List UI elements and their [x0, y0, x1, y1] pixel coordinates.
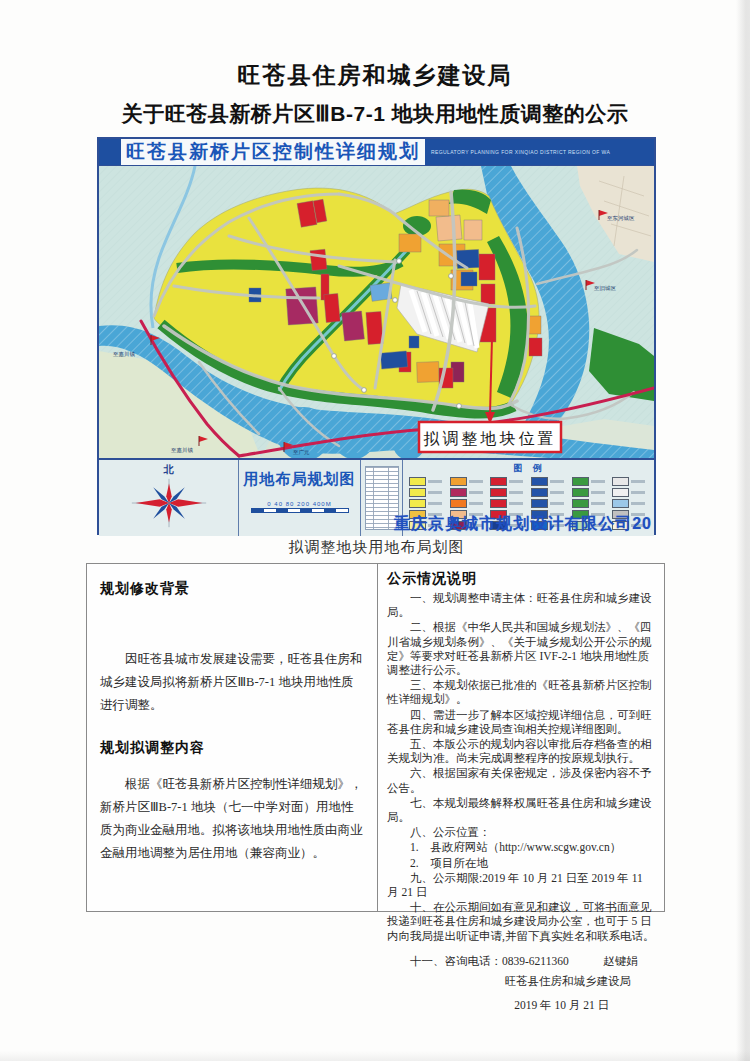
legend-item — [531, 499, 569, 508]
legend-swatch — [572, 488, 589, 497]
planning-map: 至东河城区 至旧城区 至嘉川镇 至嘉川镇 至广元 拟调整地块位置 — [99, 166, 654, 458]
legend-item — [450, 477, 488, 486]
section-heading-adjustment: 规划拟调整内容 — [100, 739, 364, 757]
signature-date: 2019 年 10 月 21 日 — [387, 998, 655, 1013]
notice-item-3: 三、本规划依据已批准的《旺苍县新桥片区控制性详细规划》。 — [387, 678, 655, 706]
north-label: 北 — [164, 463, 174, 477]
legend-swatch — [409, 477, 426, 486]
legend-item — [612, 477, 650, 486]
callout-label: 拟调整地块位置 — [424, 430, 557, 447]
legend-label-placeholder — [631, 480, 645, 483]
map-caption: 拟调整地块用地布局划图 — [97, 538, 656, 557]
marker-label-5: 至广元 — [293, 449, 310, 455]
map-header-subtitle-en: REGULATORY PLANNING FOR XINQIAO DISTRICT… — [425, 139, 654, 165]
notice-item-5: 五、本版公示的规划内容以审批后存档备查的相关规划为准。尚未完成调整程序的按原规划… — [387, 737, 655, 765]
legend-label-placeholder — [550, 502, 564, 505]
notice-item-9: 九、公示期限:2019 年 10 月 21 日至 2019 年 11 月 21 … — [387, 871, 655, 899]
marker-label-3: 至嘉川镇 — [113, 351, 136, 358]
adjustment-paragraph: 根据《旺苍县新桥片区控制性详细规划》，新桥片区ⅢB-7-1 地块（七一中学对面）… — [100, 773, 364, 865]
legend-swatch — [531, 499, 548, 508]
notice-item-8-sub1: 1. 县政府网站（http://www.scgw.gov.cn） — [387, 840, 655, 854]
legend-label-placeholder — [509, 502, 523, 505]
legend-item — [572, 488, 610, 497]
legend-item — [490, 488, 528, 497]
plan-title: 用地布局规划图 — [239, 470, 360, 489]
map-footer: 北 用地布局规划图 — [99, 458, 654, 536]
legend-label-placeholder — [591, 491, 605, 494]
legend-item — [409, 488, 447, 497]
legend-label-placeholder — [509, 480, 523, 483]
legend-label-placeholder — [550, 491, 564, 494]
section-heading-background: 规划修改背景 — [100, 580, 364, 598]
legend-item — [409, 477, 447, 486]
legend-label-placeholder — [428, 502, 442, 505]
legend-label-placeholder — [591, 502, 605, 505]
legend-item — [612, 499, 650, 508]
scan-edge-bottom — [0, 1051, 750, 1061]
legend-label-placeholder — [550, 480, 564, 483]
legend-label-placeholder — [469, 491, 483, 494]
compass-rose-icon — [127, 477, 211, 529]
right-column: 公示情况说明 一、规划调整申请主体：旺苍县住房和城乡建设局。 二、根据《中华人民… — [378, 564, 664, 911]
notice-item-1: 一、规划调整申请主体：旺苍县住房和城乡建设局。 — [387, 591, 655, 619]
legend-item — [490, 477, 528, 486]
legend-title: 图 例 — [409, 462, 650, 475]
section-heading-notice: 公示情况说明 — [387, 570, 655, 588]
notice-item-11: 十一、咨询电话：0839-6211360 赵键娟 — [387, 954, 655, 968]
legend-label-placeholder — [591, 480, 605, 483]
notice-item-8-sub2: 2. 项目所在地 — [387, 856, 655, 870]
legend-label-placeholder — [428, 480, 442, 483]
signature: 旺苍县住房和城乡建设局 — [387, 974, 655, 989]
notice-item-2: 二、根据《中华人民共和国城乡规划法》、《四川省城乡规划条例》、《关于城乡规划公开… — [387, 620, 655, 677]
marker-label-2: 至旧城区 — [594, 285, 617, 291]
legend-item — [490, 499, 528, 508]
legend-label-placeholder — [509, 491, 523, 494]
legend-swatch — [531, 488, 548, 497]
legend-swatch — [572, 477, 589, 486]
page-title-line1: 旺苍县住房和城乡建设局 — [60, 60, 690, 91]
notice-item-8: 八、公示位置： — [387, 825, 655, 839]
legend-swatch — [490, 488, 507, 497]
legend-swatch — [450, 499, 467, 508]
planning-map-figure: 旺苍县新桥片区控制性详细规划 REGULATORY PLANNING FOR X… — [97, 137, 656, 535]
company-name: 重庆京奥城市规划设计有限公司20 — [394, 514, 652, 535]
info-panel: 规划修改背景 因旺苍县城市发展建设需要，旺苍县住房和城乡建设局拟将新桥片区ⅢB-… — [86, 563, 665, 912]
scale-text: 0 40 80 200 400M — [239, 501, 360, 507]
notice-item-10: 十、在公示期间如有意见和建议，可将书面意见投递到旺苍县住房和城乡建设局办公室，也… — [387, 900, 655, 943]
legend-swatch — [450, 488, 467, 497]
legend-swatch — [409, 499, 426, 508]
legend-item — [450, 488, 488, 497]
scan-edge-right — [736, 0, 750, 1061]
scale-bar: 0 40 80 200 400M — [239, 501, 360, 513]
legend-item — [572, 477, 610, 486]
legend-label-placeholder — [469, 502, 483, 505]
map-header-title: 旺苍县新桥片区控制性详细规划 — [121, 139, 425, 165]
page-title-line2: 关于旺苍县新桥片区ⅢB-7-1 地块用地性质调整的公示 — [60, 100, 690, 128]
marker-label-1: 至东河城区 — [607, 215, 635, 222]
map-canvas: 至东河城区 至旧城区 至嘉川镇 至嘉川镇 至广元 拟调整地块位置 — [99, 166, 654, 458]
legend-swatch — [612, 477, 629, 486]
legend-item — [450, 499, 488, 508]
legend-label-placeholder — [428, 491, 442, 494]
legend-item — [531, 477, 569, 486]
page-title-block: 旺苍县住房和城乡建设局 关于旺苍县新桥片区ⅢB-7-1 地块用地性质调整的公示 — [60, 60, 690, 128]
marker-label-4: 至嘉川镇 — [171, 447, 194, 454]
notice-item-4: 四、需进一步了解本区域控规详细信息，可到旺苍县住房和城乡建设局查询相关控规详细图… — [387, 708, 655, 736]
plan-title-panel: 用地布局规划图 0 40 80 200 400M — [239, 460, 361, 536]
legend-label-placeholder — [631, 502, 645, 505]
map-header-square — [99, 139, 121, 165]
left-column: 规划修改背景 因旺苍县城市发展建设需要，旺苍县住房和城乡建设局拟将新桥片区ⅢB-… — [87, 564, 378, 911]
compass-panel: 北 — [99, 460, 239, 536]
legend-swatch — [612, 488, 629, 497]
legend-label-placeholder — [469, 480, 483, 483]
legend-swatch — [612, 499, 629, 508]
legend-swatch — [572, 499, 589, 508]
legend-swatch — [531, 477, 548, 486]
legend-label-placeholder — [631, 491, 645, 494]
legend-swatch — [450, 477, 467, 486]
legend-swatch — [490, 477, 507, 486]
legend-swatch — [409, 488, 426, 497]
map-header: 旺苍县新桥片区控制性详细规划 REGULATORY PLANNING FOR X… — [99, 139, 654, 166]
notice-item-6: 六、根据国家有关保密规定，涉及保密内容不予公告。 — [387, 766, 655, 794]
legend-swatch — [490, 499, 507, 508]
legend-item — [612, 488, 650, 497]
document-page: 旺苍县住房和城乡建设局 关于旺苍县新桥片区ⅢB-7-1 地块用地性质调整的公示 … — [0, 0, 750, 1061]
legend-item — [409, 499, 447, 508]
legend-item — [572, 499, 610, 508]
scale-line — [251, 508, 349, 513]
background-paragraph: 因旺苍县城市发展建设需要，旺苍县住房和城乡建设局拟将新桥片区ⅢB-7-1 地块用… — [100, 648, 364, 717]
notice-item-7: 七、本规划最终解释权属旺苍县住房和城乡建设局。 — [387, 796, 655, 824]
legend-item — [531, 488, 569, 497]
